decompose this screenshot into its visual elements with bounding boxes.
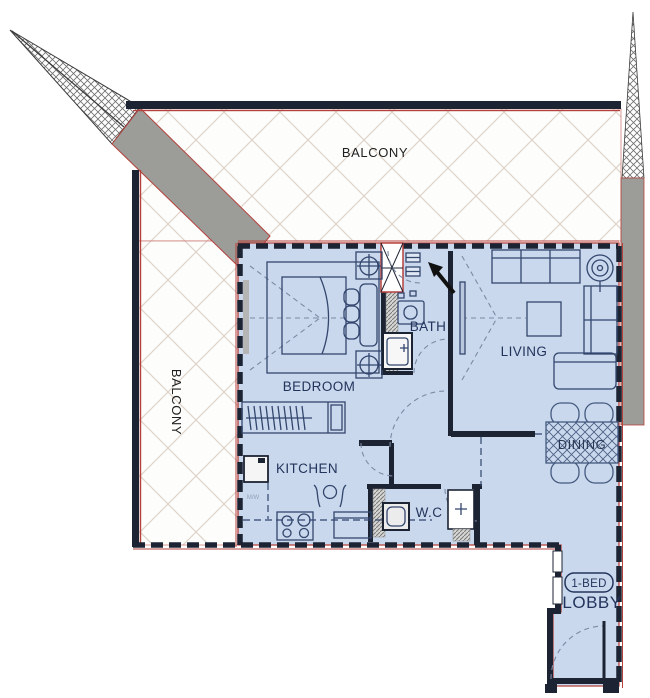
living-label: LIVING — [501, 344, 548, 359]
bath-label: BATH — [410, 319, 447, 334]
right-gray-mass — [621, 178, 644, 425]
lobby-bottom-tab-right — [603, 684, 619, 693]
unit-badge-label: 1-BED — [571, 578, 606, 590]
corridor-wall — [451, 431, 535, 437]
balcony-left-label: BALCONY — [169, 369, 184, 435]
wc-top-wall — [367, 484, 441, 489]
duct-shaft — [381, 243, 403, 292]
kitchen-right-wall — [389, 443, 394, 488]
left-wall-red-line — [140, 170, 141, 547]
lobby-riser-1 — [553, 551, 562, 572]
bath-bottom-wall — [383, 371, 413, 375]
top-balcony-wall — [126, 101, 621, 109]
balcony-top-label: BALCONY — [342, 145, 408, 160]
lobby-left-wall-lower — [547, 612, 553, 684]
wc-right-wall — [474, 489, 480, 545]
lobby-label: LOBBY — [562, 593, 621, 612]
balcony-left-area — [139, 241, 240, 545]
floorplan-svg: BALCONY BALCONY BEDROOM KITCHEN BATH LIV… — [0, 0, 650, 698]
bath-right-wall — [448, 251, 453, 436]
top-wall-red-line — [133, 110, 620, 111]
fridge-handle — [258, 458, 265, 463]
living-door-panel — [460, 282, 465, 354]
bedroom-balcony-slider — [243, 280, 249, 354]
microwave-label: M/W — [247, 495, 260, 501]
lobby-riser-2 — [553, 577, 562, 604]
wc-hatch-block — [453, 529, 470, 541]
wc-label: W.C — [416, 505, 443, 520]
hatched-wedge-top-right — [622, 12, 644, 178]
lobby-bottom-tab-left — [545, 684, 557, 693]
hatched-wedge-top-left — [10, 30, 140, 144]
kitchen-door-leaf — [359, 440, 392, 446]
kitchen-label: KITCHEN — [276, 461, 338, 476]
dining-label: DINING — [558, 437, 607, 452]
wedge-center-line — [12, 31, 124, 127]
floorplan-canvas: BALCONY BALCONY BEDROOM KITCHEN BATH LIV… — [0, 0, 650, 698]
left-balcony-wall — [132, 170, 139, 547]
bedroom-label: BEDROOM — [283, 379, 356, 394]
lobby-bottom-wall — [547, 678, 619, 684]
